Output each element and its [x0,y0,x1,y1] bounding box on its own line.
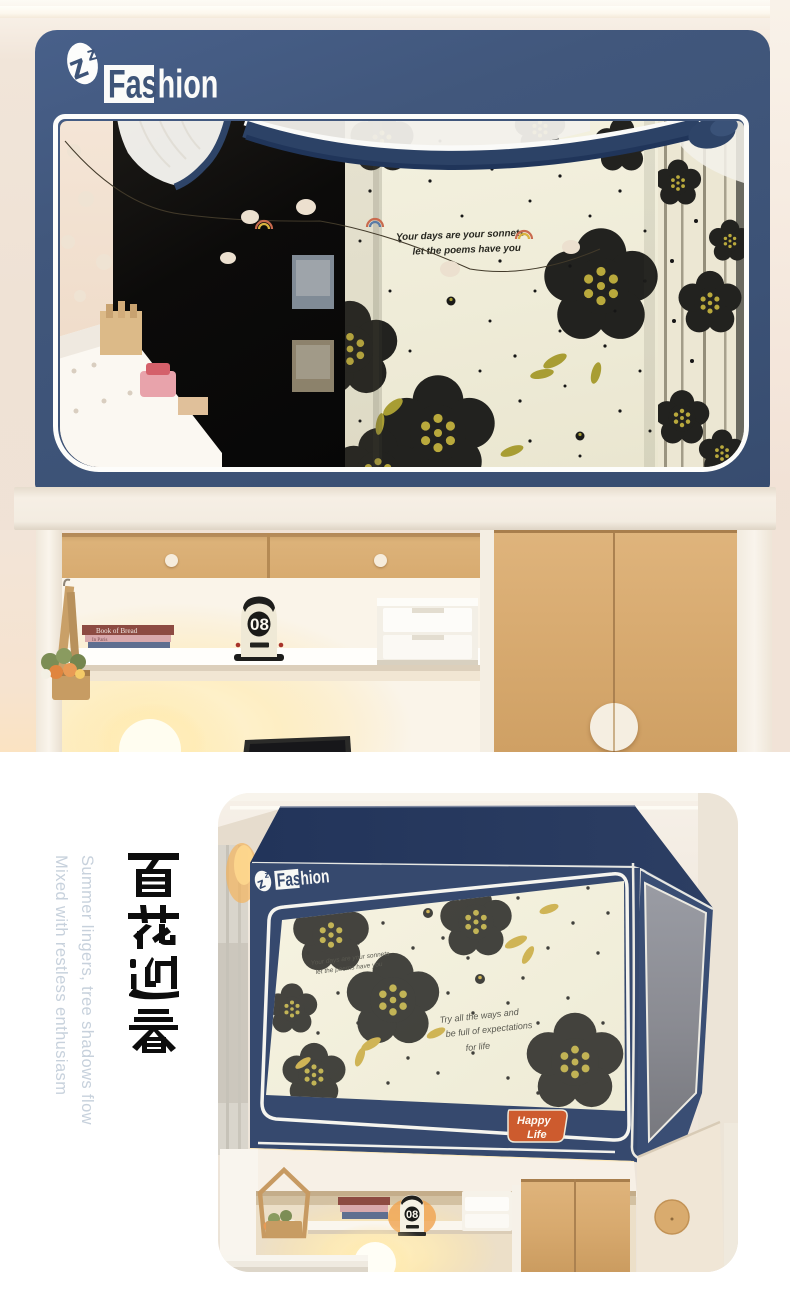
svg-text:Happy: Happy [517,1115,552,1127]
svg-text:Life: Life [527,1129,547,1141]
svg-text:let the poems have you: let the poems have you [412,243,521,258]
svg-text:Your days are your sonnets: Your days are your sonnets [396,228,526,244]
svg-text:08: 08 [250,615,269,634]
svg-text:Fashion: Fashion [276,865,330,891]
svg-text:Book of Bread: Book of Bread [96,627,138,635]
svg-text:08: 08 [406,1209,418,1221]
svg-text:Fashion: Fashion [108,62,218,107]
